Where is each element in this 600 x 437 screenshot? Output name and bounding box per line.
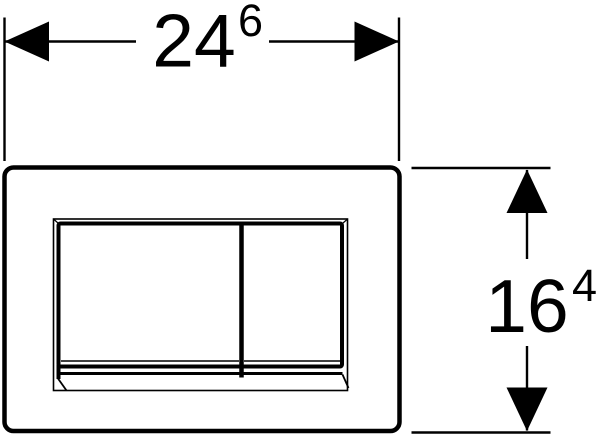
width-dimension-value: 24 xyxy=(152,0,235,83)
width-dimension: 24 6 xyxy=(5,0,400,161)
dimension-drawing: 24 6 16 4 xyxy=(0,0,600,437)
flush-buttons-outline xyxy=(59,224,343,367)
height-arrowhead-up-icon xyxy=(507,170,548,214)
width-arrowhead-right-icon xyxy=(355,22,400,62)
technical-drawing-canvas: 24 6 16 4 xyxy=(0,0,600,437)
width-arrowhead-left-icon xyxy=(5,22,50,62)
flush-plate xyxy=(5,168,400,432)
width-dimension-superscript: 6 xyxy=(238,0,263,46)
height-dimension-superscript: 4 xyxy=(572,260,597,311)
height-arrowhead-down-icon xyxy=(507,388,548,432)
height-dimension-value: 16 xyxy=(485,264,568,348)
height-dimension: 16 4 xyxy=(412,168,598,433)
